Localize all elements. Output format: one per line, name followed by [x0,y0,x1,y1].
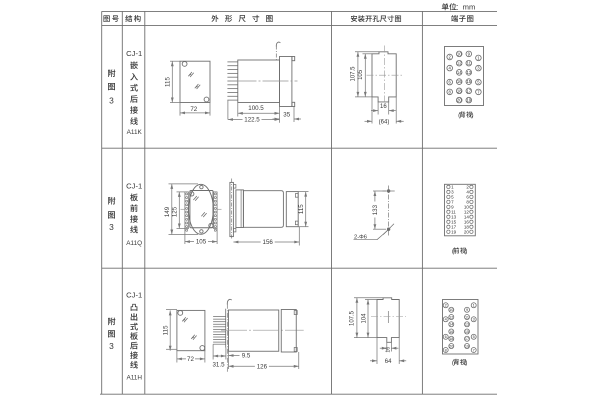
svg-text:12: 12 [449,315,453,319]
svg-text:CJ-1: CJ-1 [126,182,142,191]
svg-text:8: 8 [445,348,447,352]
svg-text:20: 20 [464,229,470,234]
svg-text:31.5: 31.5 [212,362,225,369]
svg-text:125: 125 [172,206,179,217]
svg-text:105: 105 [196,239,207,246]
svg-text:15: 15 [466,79,471,84]
svg-text:72: 72 [187,356,194,363]
svg-text:3: 3 [109,341,114,351]
svg-text:16: 16 [457,79,462,84]
svg-text:126: 126 [257,363,268,370]
svg-text:10: 10 [449,308,453,312]
svg-text:9: 9 [466,308,468,312]
svg-text:4: 4 [445,318,447,322]
svg-text:6: 6 [445,335,447,339]
svg-text:CJ-1: CJ-1 [126,49,142,58]
svg-text:4: 4 [449,66,452,71]
svg-text:14: 14 [449,323,453,327]
svg-text:7: 7 [477,89,480,94]
svg-text:6: 6 [449,80,452,85]
svg-text:1: 1 [477,55,480,60]
svg-text:16: 16 [449,330,453,334]
svg-text:64: 64 [385,359,392,365]
svg-text:16: 16 [385,347,391,353]
svg-text:35: 35 [283,111,290,118]
svg-text:16: 16 [380,104,387,110]
svg-text:115: 115 [163,325,170,335]
svg-text:14: 14 [457,70,462,75]
svg-text:17: 17 [466,88,471,93]
svg-text:17: 17 [465,337,469,341]
svg-text:11: 11 [465,315,469,319]
svg-text:2: 2 [449,55,452,60]
svg-text:115: 115 [165,77,172,87]
svg-text:12: 12 [457,61,462,66]
svg-text:107.5: 107.5 [350,310,356,326]
svg-text:19: 19 [451,229,457,234]
svg-text:18: 18 [457,88,462,93]
svg-text:104: 104 [361,313,367,324]
svg-text:A11Q: A11Q [126,240,142,247]
svg-text:156: 156 [263,239,274,246]
svg-text:19: 19 [465,344,469,348]
svg-text:9: 9 [468,51,471,56]
svg-text:CJ-1: CJ-1 [126,291,142,300]
svg-text:133: 133 [372,204,379,215]
svg-text:13: 13 [465,323,469,327]
svg-text:): ) [465,360,467,367]
svg-text:20: 20 [449,344,453,348]
svg-text:5: 5 [477,80,480,85]
svg-text:7: 7 [473,348,475,352]
svg-text:A11H: A11H [126,375,142,382]
svg-text:): ) [465,248,467,255]
svg-text:105: 105 [358,69,364,80]
svg-text:1: 1 [473,304,475,308]
svg-text:3: 3 [109,95,114,105]
svg-text:2: 2 [445,304,447,308]
svg-text:(64): (64) [379,119,390,125]
svg-text:72: 72 [190,106,197,113]
svg-text:3: 3 [477,66,480,71]
svg-text:): ) [471,112,473,119]
svg-text:15: 15 [465,330,469,334]
svg-text:149: 149 [164,206,171,217]
svg-text:A11K: A11K [127,129,143,136]
svg-text:11: 11 [467,61,472,66]
svg-text:5: 5 [473,335,475,339]
svg-text:mm: mm [463,2,476,11]
svg-text:20: 20 [457,98,462,103]
svg-text:8: 8 [449,89,452,94]
svg-text:19: 19 [466,98,471,103]
svg-text:107.5: 107.5 [351,66,357,82]
svg-text:115: 115 [298,204,305,214]
svg-text:122.5: 122.5 [244,117,260,124]
svg-text:3: 3 [473,318,475,322]
svg-text:：: ： [455,4,462,11]
svg-text:10: 10 [457,51,462,56]
svg-text:13: 13 [466,70,471,75]
svg-text:100.5: 100.5 [248,105,264,112]
svg-text:2-Φ6: 2-Φ6 [354,234,367,240]
svg-text:9.5: 9.5 [242,353,251,360]
svg-text:18: 18 [449,337,453,341]
svg-text:3: 3 [109,222,114,232]
